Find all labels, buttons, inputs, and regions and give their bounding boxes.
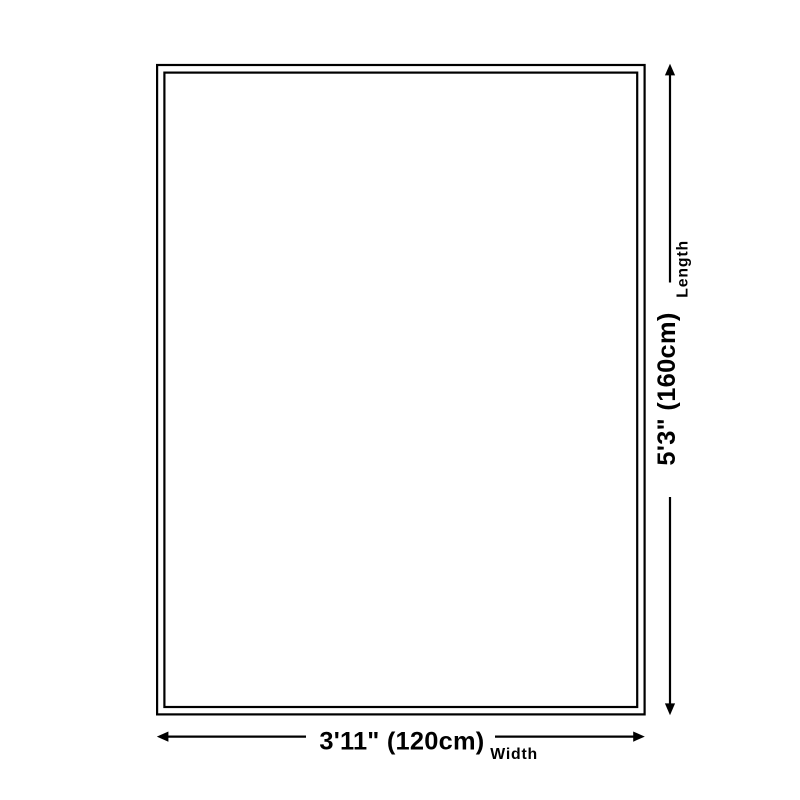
svg-text:3'11" (120cm): 3'11" (120cm) (319, 727, 484, 755)
svg-text:Width: Width (490, 746, 538, 763)
svg-text:Length: Length (675, 240, 692, 298)
svg-text:5'3" (160cm): 5'3" (160cm) (653, 312, 681, 465)
